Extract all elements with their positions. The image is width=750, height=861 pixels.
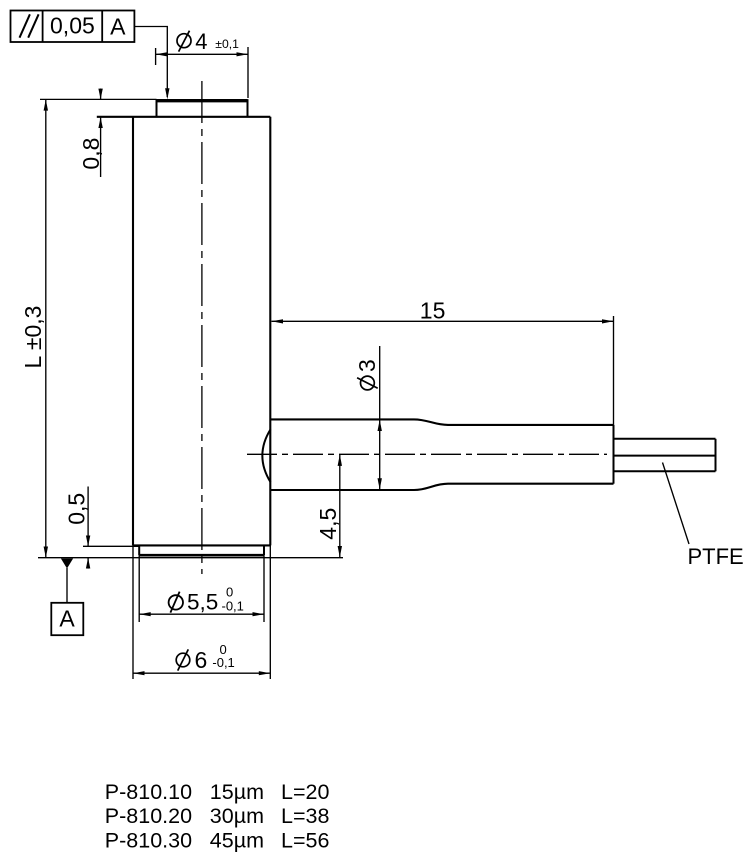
- svg-text:15µm: 15µm: [210, 780, 264, 804]
- svg-text:A: A: [59, 606, 75, 632]
- svg-text:A: A: [110, 13, 126, 39]
- svg-text:L=38: L=38: [281, 804, 329, 828]
- svg-text:PTFE: PTFE: [688, 544, 744, 569]
- svg-text:-0,1: -0,1: [212, 655, 234, 670]
- svg-text:-0,1: -0,1: [222, 599, 244, 614]
- svg-text:3: 3: [354, 359, 380, 372]
- svg-text:6: 6: [195, 647, 208, 673]
- svg-text:45µm: 45µm: [210, 828, 264, 852]
- svg-text:4,5: 4,5: [315, 508, 341, 540]
- svg-text:0,05: 0,05: [50, 13, 95, 39]
- svg-text:15: 15: [420, 297, 446, 323]
- svg-text:4: 4: [195, 29, 207, 54]
- svg-text:5,5: 5,5: [187, 589, 218, 614]
- svg-text:L=56: L=56: [281, 828, 329, 852]
- svg-text:±0,1: ±0,1: [215, 37, 239, 51]
- svg-text:L ±0,3: L ±0,3: [20, 306, 46, 369]
- svg-text:0,8: 0,8: [78, 138, 104, 170]
- svg-text:P-810.30: P-810.30: [105, 828, 192, 852]
- svg-text:P-810.10: P-810.10: [105, 780, 192, 804]
- svg-text:0: 0: [226, 585, 233, 600]
- svg-text:L=20: L=20: [281, 780, 329, 804]
- svg-text:0,5: 0,5: [64, 493, 90, 525]
- svg-text:30µm: 30µm: [210, 804, 264, 828]
- svg-text:P-810.20: P-810.20: [105, 804, 192, 828]
